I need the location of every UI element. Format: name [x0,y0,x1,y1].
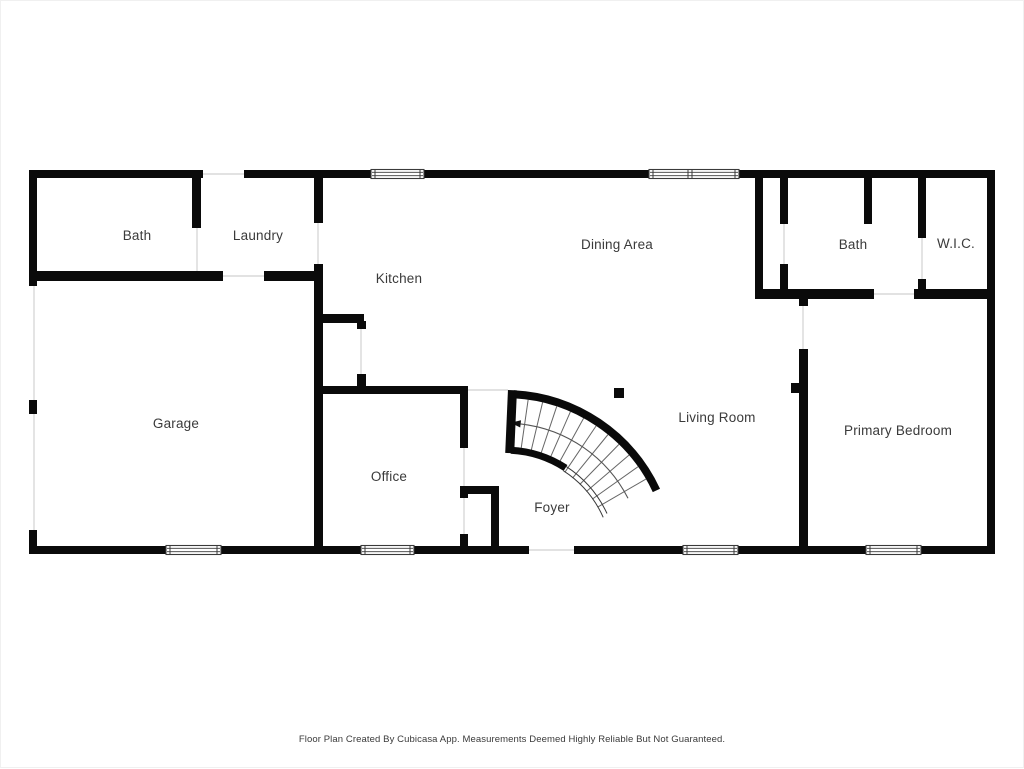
wall [29,530,37,554]
wall [424,170,649,178]
staircase [510,388,657,517]
wall [755,289,874,299]
wall [799,349,808,546]
stair-step-line [559,418,584,464]
room-labels-layer: BathLaundryKitchenDining AreaBathW.I.C.G… [123,228,975,515]
window [683,546,738,555]
room-label-bath-left: Bath [123,228,152,243]
wall [460,486,468,498]
wall [799,294,808,306]
window-frame [361,546,414,555]
wall [357,374,366,388]
window-frame [371,170,424,179]
room-label-dining-area: Dining Area [581,237,653,252]
wall [323,386,468,394]
wall [460,534,468,546]
window-frame [649,170,739,179]
wall [314,264,323,546]
wall [29,546,166,554]
wall [739,170,995,178]
stairs-inner-wall [511,450,566,468]
wall [468,486,499,494]
wall [414,546,529,554]
stairs-left-wall [510,390,513,453]
wall [780,264,788,289]
stair-step-line [580,444,619,484]
wall [460,394,468,448]
wall [357,321,366,329]
wall [192,170,201,228]
window [166,546,221,555]
stair-step-line [586,455,629,491]
wall [29,170,37,286]
wall [921,546,995,554]
wall [918,178,926,238]
stair-step-line [592,467,638,499]
wall [987,170,995,554]
wall [314,178,323,223]
wall [791,383,799,393]
disclaimer-text: Floor Plan Created By Cubicasa App. Meas… [1,734,1023,745]
wall [738,546,866,554]
column-post [614,388,624,398]
wall [574,546,683,554]
room-label-foyer: Foyer [534,500,570,515]
walls-layer [29,170,995,554]
wall [755,178,763,294]
room-label-laundry: Laundry [233,228,283,243]
window [361,546,414,555]
room-label-living-room: Living Room [678,410,755,425]
window-frame [166,546,221,555]
window [649,170,739,179]
wall [221,546,361,554]
floor-plan-svg: BathLaundryKitchenDining AreaBathW.I.C.G… [1,1,1024,769]
stair-step-line [598,479,646,507]
room-label-kitchen: Kitchen [376,271,422,286]
room-label-office: Office [371,469,407,484]
room-label-wic: W.I.C. [937,236,975,251]
wall [244,170,371,178]
stair-step-line [573,435,608,478]
room-label-bath-right: Bath [839,237,868,252]
wall [491,494,499,546]
wall [29,170,203,178]
wall [29,400,37,414]
stair-step-line [565,426,596,472]
wall [780,178,788,224]
wall [864,178,872,224]
window-frame [683,546,738,555]
stairs-inner-stringer [566,467,607,514]
room-label-primary-bedroom: Primary Bedroom [844,423,952,438]
wall [914,289,995,299]
window [866,546,921,555]
window-frame [866,546,921,555]
wall [29,271,223,281]
room-label-garage: Garage [153,416,199,431]
window [371,170,424,179]
floorplan-canvas: BathLaundryKitchenDining AreaBathW.I.C.G… [0,0,1024,768]
stair-step-line [521,400,528,451]
